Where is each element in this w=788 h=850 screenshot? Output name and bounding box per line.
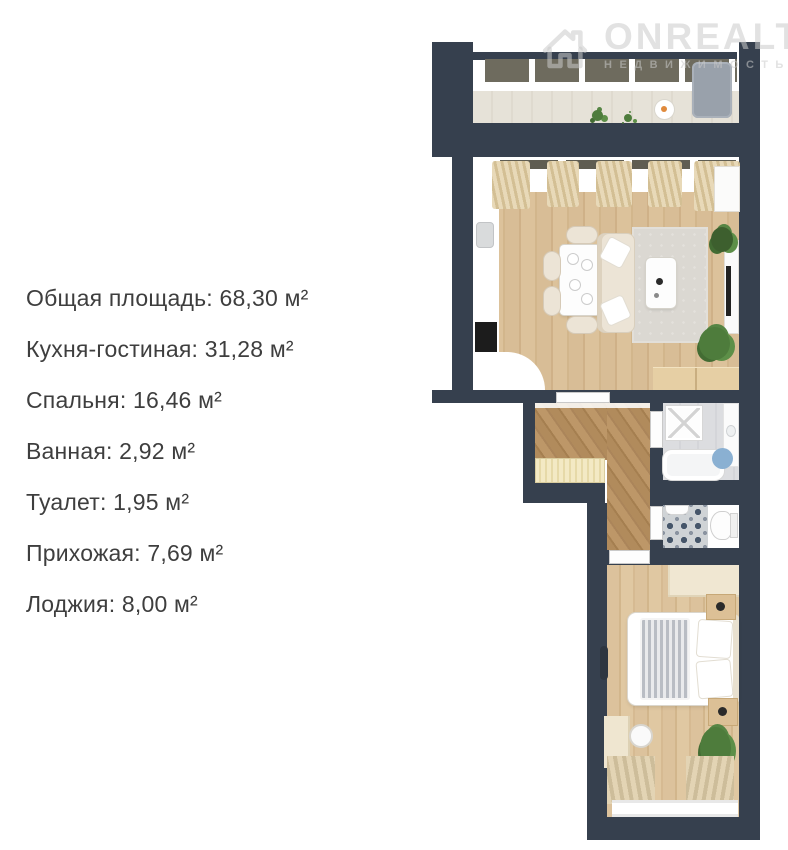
toilet-sink [665,505,689,515]
kitchen-stove [475,322,497,352]
door-hall-toilet [650,506,663,540]
door-hall-bedroom [609,550,650,564]
curtain-2 [547,161,579,207]
bedroom-window [612,800,738,817]
floorplan-page: Общая площадь: 68,30 м² Кухня-гостиная: … [0,0,788,850]
toilet-tank [730,513,738,538]
toilet-bowl [710,511,732,540]
curtain-3 [596,161,632,207]
curtain-1 [492,161,530,209]
wall-hall-step [523,483,605,503]
loggia-bench [692,62,732,118]
tv-screen [726,266,731,316]
floorplan [0,0,788,850]
hallway-wardrobe [535,458,605,483]
door-kitchen-hall [556,392,610,403]
bedroom-curtain-left [607,756,655,804]
dining-plates [568,254,578,264]
wall-kitchen-left [452,157,473,403]
dining-table [560,245,600,315]
wall-corridor-left [587,503,607,565]
nightstand-lamp-bottom [718,707,727,716]
bed-blanket [640,618,690,700]
wall-bath-toilet [650,480,740,505]
kitchen-cabinets [653,367,739,390]
bed-pillow-2 [695,659,733,700]
shower-tray [666,406,702,440]
loggia-plant [592,110,603,121]
plant-bottom-right [699,327,730,360]
kitchen-sink [476,222,494,248]
bedroom-mirror [600,646,608,680]
coffee-table-decor [656,278,663,285]
wall-bedroom-bottom [587,817,760,840]
dining-chair-top [567,227,597,243]
bath-rug [712,448,733,469]
bedroom-stool [629,724,653,748]
loggia-fruit [661,106,667,112]
curtain-4 [648,161,682,207]
wall-right [739,42,760,840]
hallway-corridor [607,403,650,550]
bathroom-sink [726,425,736,437]
bed-headboard [733,615,739,703]
dining-chair-bottom [567,317,597,333]
wall-bedroom-left [587,565,607,840]
wall-loggia-bottom [432,123,760,157]
plant-top-right [711,227,733,252]
loggia-plant-2 [624,114,632,122]
door-hall-bath [650,411,663,448]
dining-chair-left-2 [544,287,560,315]
dining-chair-left-1 [544,252,560,280]
hallway-trim [535,403,650,408]
bed-pillow-1 [696,619,734,659]
wall-shelf [714,166,740,212]
bedroom-wardrobe [668,565,739,597]
nightstand-lamp-top [716,602,725,611]
bedroom-curtain-right [686,756,734,804]
